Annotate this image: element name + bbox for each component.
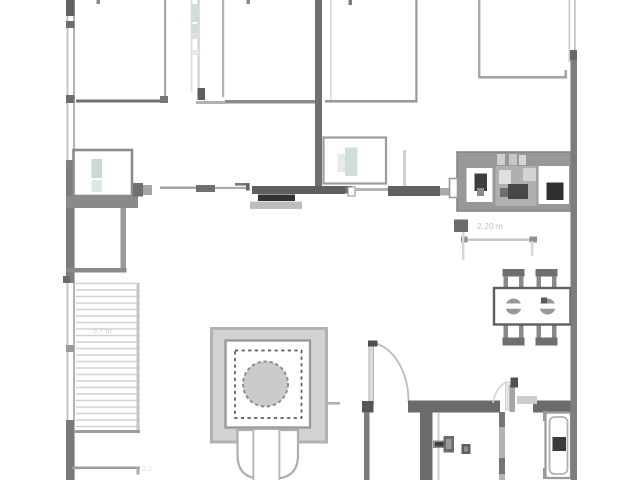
svg-text:2.20 m: 2.20 m bbox=[477, 221, 503, 231]
svg-text:2,2: 2,2 bbox=[142, 466, 152, 473]
svg-text:3,7 m: 3,7 m bbox=[93, 326, 112, 335]
